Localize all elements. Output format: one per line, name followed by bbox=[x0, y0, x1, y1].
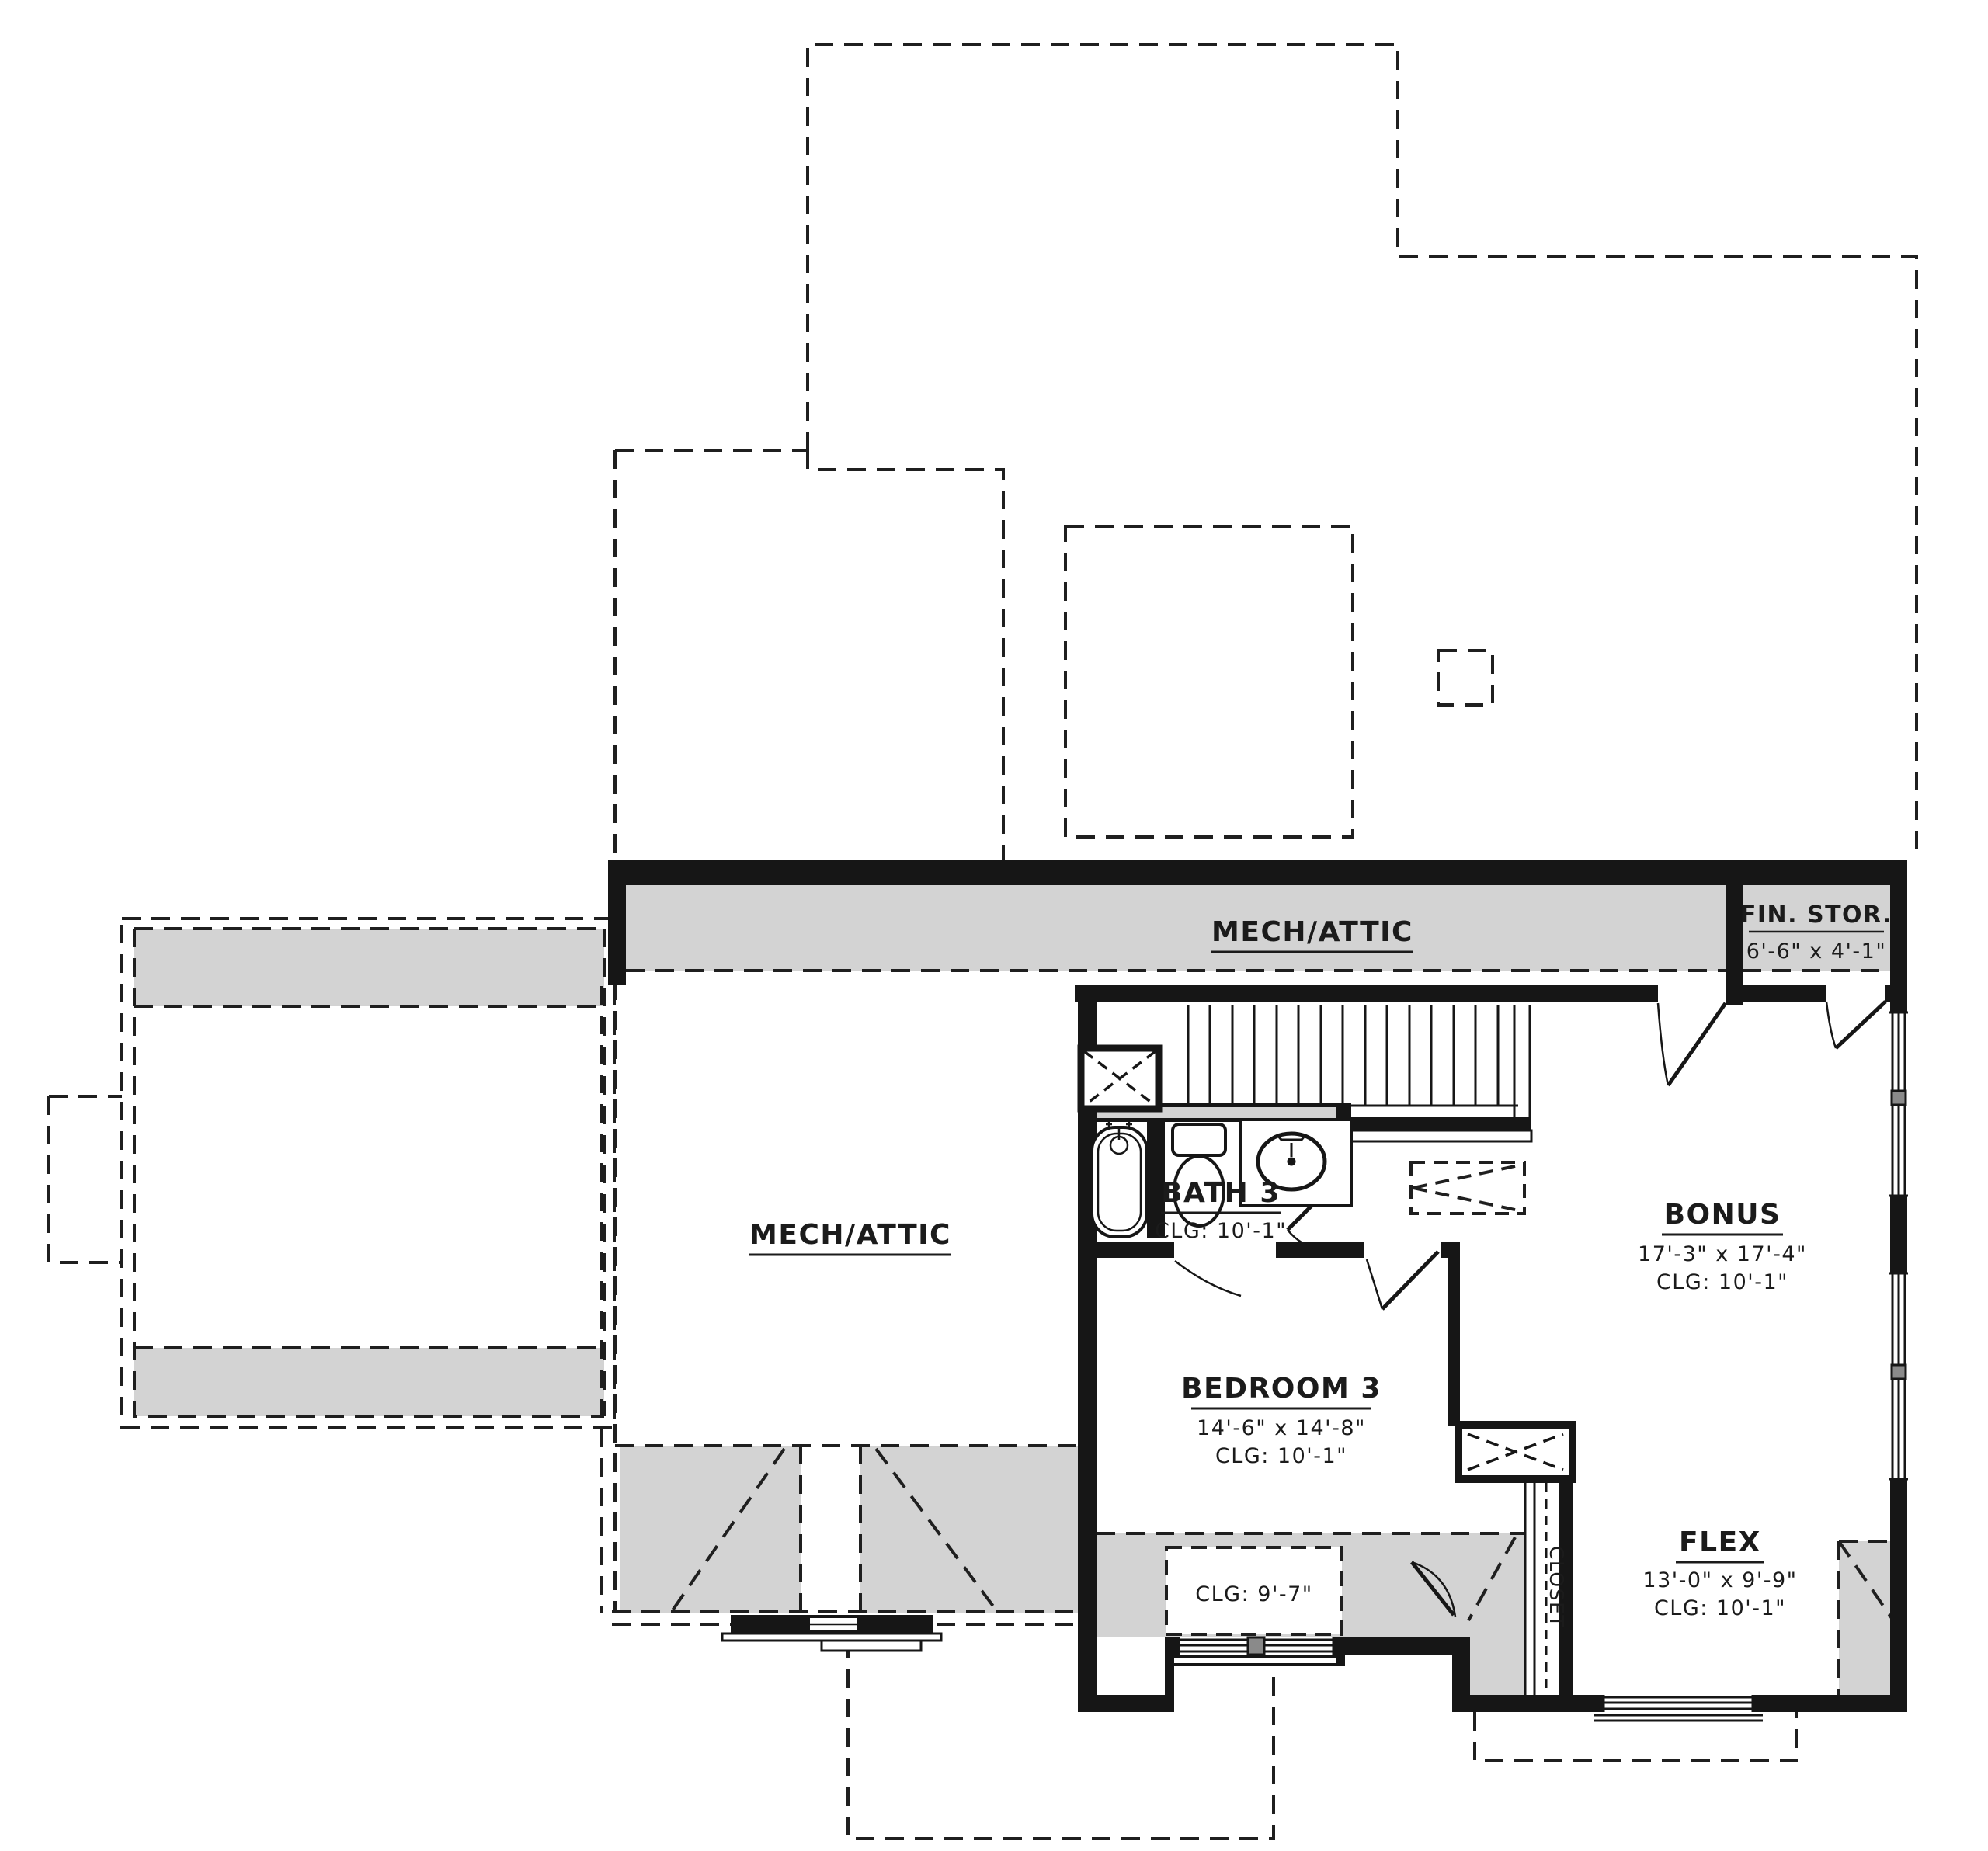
attic-access bbox=[1411, 1162, 1524, 1214]
bedroom-door bbox=[1175, 1252, 1438, 1309]
closet-symbol bbox=[1525, 1479, 1546, 1695]
bonus-window-upper bbox=[1889, 1012, 1908, 1196]
room-dims-bedroom-3: 14'-6" x 14'-8" bbox=[1197, 1416, 1366, 1440]
room-name-bonus: BONUS bbox=[1664, 1199, 1781, 1231]
room-name-fin-stor: FIN. STOR. bbox=[1740, 901, 1892, 929]
room-clg-bath-3: CLG: 10'-1" bbox=[1155, 1219, 1287, 1243]
floor-plan-svg: MECH/ATTIC FIN. STOR. 6'-6" x 4'-1" MECH… bbox=[0, 0, 1988, 1851]
room-clg-bonus: CLG: 10'-1" bbox=[1656, 1270, 1788, 1294]
label-bonus: BONUS 17'-3" x 17'-4" CLG: 10'-1" bbox=[1638, 1199, 1807, 1294]
bonus-door bbox=[1658, 1003, 1726, 1085]
bedroom-window bbox=[1165, 1637, 1345, 1666]
bathtub bbox=[1092, 1121, 1147, 1237]
room-name-bedroom-3: BEDROOM 3 bbox=[1181, 1373, 1382, 1405]
room-name-mech-attic-left: MECH/ATTIC bbox=[749, 1219, 951, 1251]
label-mech-attic-top: MECH/ATTIC bbox=[1211, 916, 1413, 952]
room-dims-fin-stor: 6'-6" x 4'-1" bbox=[1746, 939, 1887, 964]
shower bbox=[1081, 1048, 1159, 1109]
ceiling-break-box: CLG: 9'-7" bbox=[1166, 1547, 1342, 1634]
exterior-door-left bbox=[722, 1615, 941, 1651]
floor-plan-page: MECH/ATTIC FIN. STOR. 6'-6" x 4'-1" MECH… bbox=[0, 0, 1988, 1851]
room-clg-bedroom-3: CLG: 10'-1" bbox=[1215, 1444, 1347, 1468]
flex-window bbox=[1594, 1695, 1763, 1721]
room-name-mech-attic-top: MECH/ATTIC bbox=[1211, 916, 1413, 948]
label-flex: FLEX 13'-0" x 9'-9" CLG: 10'-1" bbox=[1642, 1526, 1797, 1620]
linen-cabinet bbox=[1458, 1425, 1573, 1479]
label-mech-attic-left: MECH/ATTIC bbox=[749, 1219, 951, 1255]
label-closet: CLOSET bbox=[1545, 1546, 1568, 1628]
label-fin-stor: FIN. STOR. 6'-6" x 4'-1" bbox=[1740, 901, 1892, 964]
room-name-flex: FLEX bbox=[1679, 1526, 1761, 1558]
label-bedroom-3: BEDROOM 3 14'-6" x 14'-8" CLG: 10'-1" bbox=[1181, 1373, 1382, 1468]
shaded-attic-zones bbox=[134, 885, 1895, 1695]
fin-stor-door bbox=[1826, 1002, 1885, 1048]
room-dims-flex: 13'-0" x 9'-9" bbox=[1642, 1568, 1797, 1592]
bonus-window-lower bbox=[1889, 1273, 1908, 1479]
room-clg-flex: CLG: 10'-1" bbox=[1654, 1596, 1786, 1620]
ceiling-break-label: CLG: 9'-7" bbox=[1195, 1582, 1312, 1606]
toilet bbox=[1173, 1124, 1225, 1226]
room-dims-bonus: 17'-3" x 17'-4" bbox=[1638, 1242, 1807, 1266]
room-name-bath-3: BATH 3 bbox=[1161, 1177, 1281, 1209]
room-name-closet: CLOSET bbox=[1545, 1546, 1568, 1628]
